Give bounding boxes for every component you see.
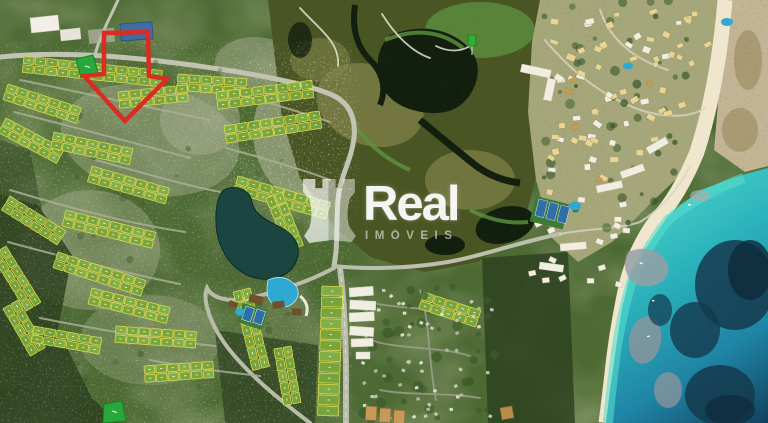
highlighted-lot-south [103, 401, 126, 423]
resort-pool [569, 202, 581, 211]
satellite-map [0, 0, 768, 423]
aerial-masterplan-image: Real IMÓVEIS [0, 0, 768, 423]
